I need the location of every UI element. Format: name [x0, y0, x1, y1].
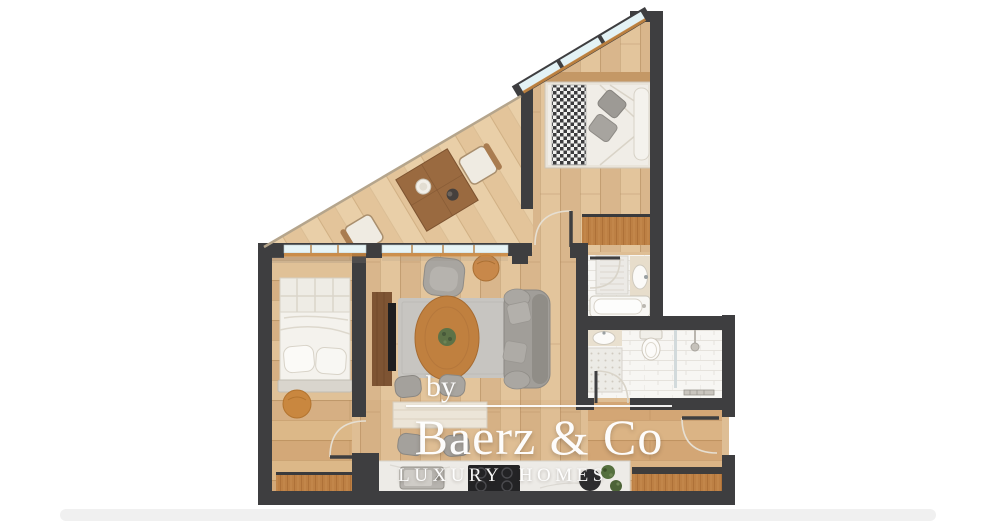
bottom-wall: [258, 491, 735, 505]
kitchen-island: [393, 402, 487, 428]
pillow: [283, 345, 315, 374]
stool: [397, 432, 425, 456]
armchair: [422, 256, 466, 298]
window-frame: [284, 253, 366, 257]
right-wall-bottom-lower: [722, 455, 735, 505]
plant: [601, 465, 615, 479]
entry-cabinet-back: [632, 467, 722, 475]
bathroom-south-wall-b: [630, 398, 722, 410]
stool: [394, 375, 422, 399]
cushion: [506, 301, 532, 325]
floor-plan-canvas: [0, 0, 1000, 521]
window: [284, 245, 366, 253]
bolster-pillow: [634, 88, 649, 160]
toilet: [642, 338, 660, 360]
plant: [610, 480, 622, 492]
floor-plan-page: by Baerz & Co LUXURY HOMES: [0, 0, 1000, 521]
wardrobe: [582, 214, 650, 245]
right-wall-bottom-upper: [722, 315, 735, 417]
bedroom-top-west-wall: [521, 88, 533, 209]
pillow: [315, 347, 347, 375]
shower-tray: [596, 256, 628, 294]
round-rug: [283, 390, 311, 418]
faucet: [436, 476, 441, 481]
bedroom-left-east-wall: [352, 250, 366, 417]
shower-tray: [588, 348, 622, 392]
sofa: [502, 289, 550, 389]
bed-runner: [552, 85, 586, 165]
cooktop: [468, 465, 520, 493]
interior-window-band: [272, 243, 532, 263]
ground-shadow: [60, 509, 936, 521]
bathroom-south-wall-a: [576, 398, 594, 410]
window: [382, 245, 508, 253]
logo-disc: [579, 469, 601, 491]
stool: [442, 434, 470, 457]
window-frame: [382, 253, 508, 257]
left-wall: [258, 243, 272, 505]
bathroom-west-wall: [576, 250, 588, 410]
window-band-stub: [512, 255, 528, 264]
shower-glass: [674, 330, 677, 388]
right-wall-top: [650, 13, 663, 330]
bathrooms-divider-wall: [576, 316, 735, 330]
towel-rail: [684, 390, 714, 395]
cushion: [502, 340, 527, 364]
bench: [278, 380, 352, 392]
stool: [438, 374, 466, 397]
tv: [388, 303, 396, 371]
plant-pot: [438, 328, 456, 346]
